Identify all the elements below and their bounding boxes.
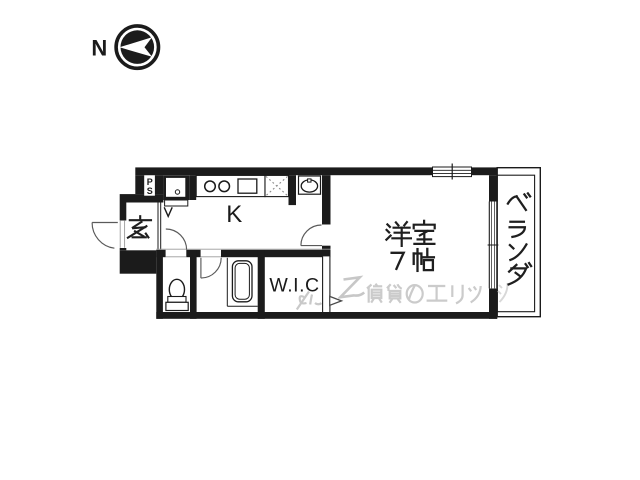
svg-text:S: S xyxy=(147,186,153,196)
svg-text:N: N xyxy=(91,35,107,60)
svg-text:W.I.C: W.I.C xyxy=(269,274,319,296)
svg-text:K: K xyxy=(226,201,242,228)
